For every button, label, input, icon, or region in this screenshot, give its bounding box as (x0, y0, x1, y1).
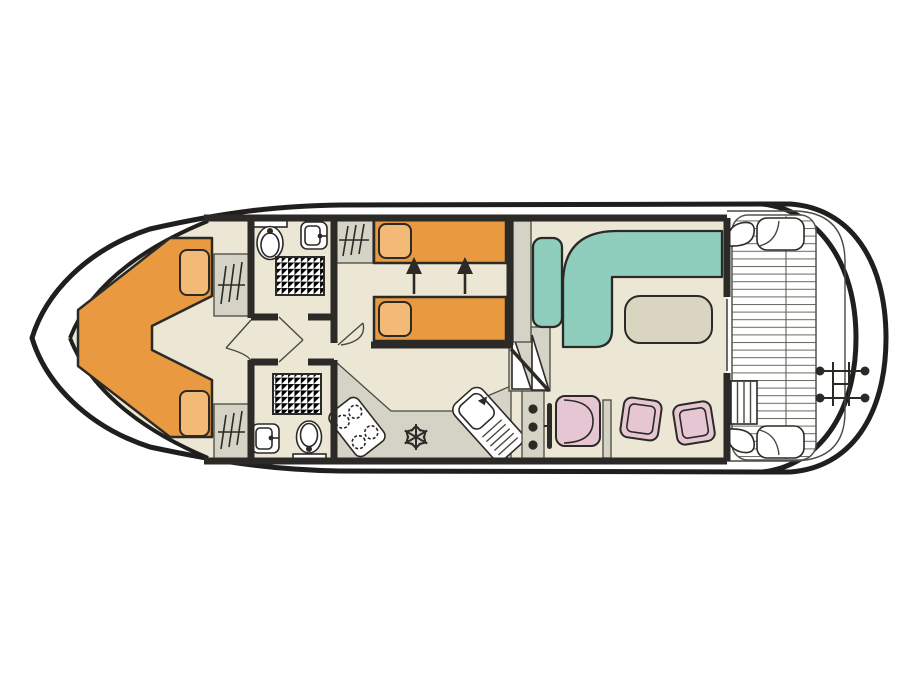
wardrobe-bottom (214, 404, 249, 460)
swim-ladder-icon (818, 362, 865, 406)
pillow (379, 224, 411, 258)
aft-deck (727, 211, 870, 461)
pillow-bottom (180, 391, 209, 436)
wardrobe-top (214, 254, 249, 316)
washbasin-icon (301, 222, 327, 249)
toilet-icon (297, 421, 322, 453)
saloon-table (625, 296, 712, 343)
pillow-top (180, 250, 209, 295)
shower-grid-icon (276, 257, 324, 295)
shower-grid-icon (273, 374, 321, 414)
stool-2 (672, 400, 716, 445)
corner-seat-top (728, 218, 804, 250)
console-dials (528, 404, 537, 449)
steering-wheel-icon (547, 403, 552, 449)
washbasin-icon (252, 424, 279, 453)
side-cabinet (513, 221, 531, 342)
bench-seat (533, 238, 562, 327)
floor-plan-canvas (0, 0, 899, 674)
helm-seat (556, 396, 600, 446)
deck-steps-ladder-icon (731, 381, 757, 424)
stool-1 (619, 397, 662, 442)
side-partition (603, 400, 611, 458)
wardrobe-middle (335, 219, 373, 263)
toilet-icon (257, 227, 283, 260)
pillow (379, 302, 411, 336)
boat-floor-plan (0, 0, 899, 674)
